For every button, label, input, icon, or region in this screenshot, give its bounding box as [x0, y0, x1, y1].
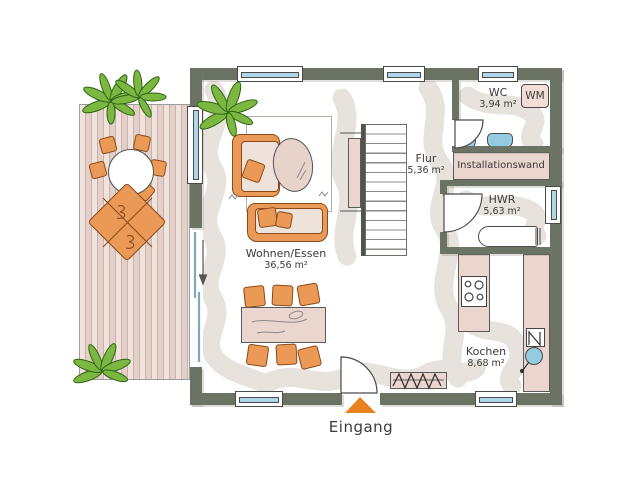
- window-bottom-right: [475, 391, 517, 407]
- room-name: Wohnen/Essen: [246, 247, 327, 260]
- entrance-triangle-icon: [345, 397, 376, 413]
- sofa-cushion: [275, 211, 294, 230]
- wall-hwr-bottom: [440, 247, 550, 254]
- wall-left-lower: [190, 367, 202, 405]
- staircase: [365, 124, 407, 256]
- room-label-hwr: HWR 5,63 m²: [483, 193, 520, 218]
- washing-machine: WM: [521, 84, 549, 108]
- sofa: [247, 203, 328, 242]
- window-glass: [387, 72, 421, 78]
- room-area: 3,94 m²: [479, 99, 516, 110]
- dining-chair: [246, 344, 270, 368]
- window-right-hwr: [545, 186, 561, 224]
- window-glass: [193, 110, 199, 180]
- room-area: 5,36 m²: [407, 165, 444, 176]
- dining-chair: [271, 284, 293, 306]
- window-top-right: [478, 66, 518, 82]
- wall-bottom-right: [380, 393, 562, 405]
- room-area: 8,68 m²: [466, 358, 506, 369]
- room-name: WC: [479, 86, 516, 99]
- window-glass: [239, 397, 279, 403]
- washing-machine-label: WM: [525, 90, 544, 102]
- wall-wc-stub: [452, 80, 459, 120]
- wall-hwr-left-lower: [440, 232, 447, 247]
- window-top-left: [237, 66, 303, 82]
- room-name: Kochen: [466, 345, 506, 358]
- window-glass: [479, 397, 513, 403]
- dining-chair: [243, 285, 266, 308]
- stair-rail: [348, 138, 361, 208]
- room-label-flur: Flur 5,36 m²: [407, 152, 444, 177]
- room-label-wohnen-essen: Wohnen/Essen 36,56 m²: [246, 247, 327, 272]
- window-bottom-left: [235, 391, 283, 407]
- kitchen-sink-icon: [525, 347, 543, 365]
- dining-chair: [296, 282, 320, 306]
- water-tank: [478, 226, 538, 247]
- window-glass: [551, 190, 557, 220]
- wall-installation-top: [452, 146, 562, 152]
- room-area: 36,56 m²: [246, 260, 327, 271]
- dining-table: [241, 307, 326, 343]
- window-glass: [241, 72, 299, 78]
- stove-icon: [461, 276, 487, 307]
- room-name: HWR: [483, 193, 520, 206]
- entry-bench: [390, 372, 447, 389]
- label-installationswand: Installationswand: [457, 160, 545, 172]
- wall-hwr-left-upper: [440, 186, 447, 194]
- dining-chair: [275, 343, 297, 365]
- stair-stringer: [361, 124, 365, 256]
- window-top-middle: [383, 66, 425, 82]
- window-left: [187, 106, 203, 184]
- wall-installation-bottom: [440, 180, 562, 186]
- wall-right: [550, 68, 562, 405]
- window-glass: [482, 72, 514, 78]
- label-entrance: Eingang: [329, 418, 393, 436]
- room-label-kochen: Kochen 8,68 m²: [466, 345, 506, 370]
- sliding-door: [195, 232, 199, 362]
- floor-plan: WM: [0, 0, 640, 480]
- kitchen-counter: [523, 254, 550, 392]
- fridge-icon: [526, 328, 545, 347]
- room-name: Flur: [407, 152, 444, 165]
- room-area: 5,63 m²: [483, 206, 520, 217]
- room-label-wc: WC 3,94 m²: [479, 86, 516, 111]
